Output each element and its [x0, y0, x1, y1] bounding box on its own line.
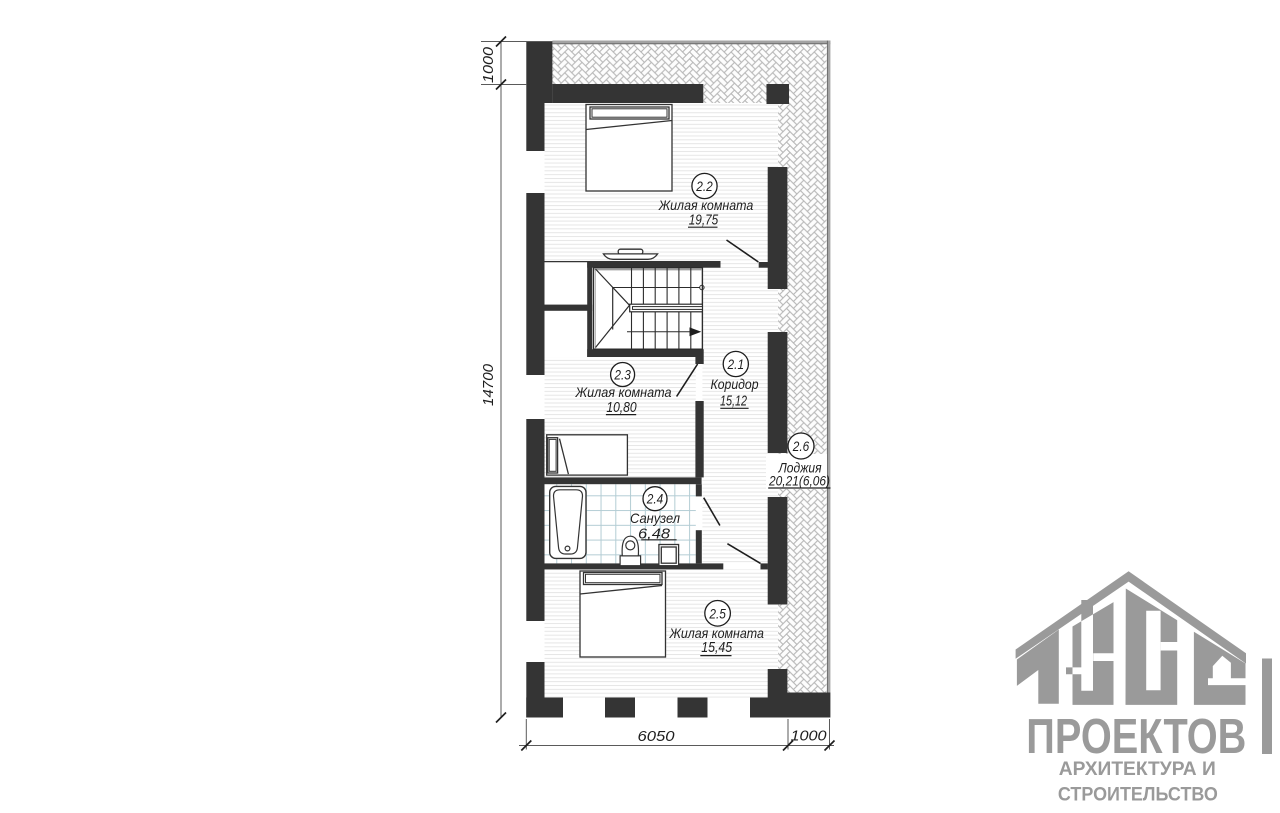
svg-text:Жилая комната: Жилая комната — [669, 626, 765, 641]
svg-text:15,45: 15,45 — [701, 640, 733, 656]
svg-text:Санузел: Санузел — [630, 511, 680, 526]
svg-text:2.2: 2.2 — [695, 178, 713, 194]
svg-text:10,80: 10,80 — [606, 400, 636, 416]
svg-text:6050: 6050 — [638, 729, 675, 745]
svg-text:Жилая комната: Жилая комната — [658, 198, 754, 213]
svg-text:Жилая комната: Жилая комната — [575, 385, 672, 400]
svg-text:14700: 14700 — [481, 364, 497, 406]
svg-text:1000: 1000 — [791, 729, 827, 745]
svg-text:2.6: 2.6 — [792, 438, 810, 454]
svg-text:АРХИТЕКТУРА И: АРХИТЕКТУРА И — [1059, 758, 1216, 780]
svg-text:СТРОИТЕЛЬСТВО: СТРОИТЕЛЬСТВО — [1058, 784, 1218, 806]
svg-text:2.1: 2.1 — [727, 356, 744, 372]
svg-text:Коридор: Коридор — [711, 377, 759, 392]
svg-text:19,75: 19,75 — [689, 213, 719, 229]
svg-text:20,21(6,06): 20,21(6,06) — [768, 473, 830, 489]
svg-text:2.5: 2.5 — [709, 605, 727, 621]
svg-text:ПРОЕКТОВ: ПРОЕКТОВ — [1026, 710, 1246, 764]
svg-text:1000: 1000 — [481, 47, 497, 83]
svg-text:15,12: 15,12 — [720, 394, 747, 410]
svg-text:2.3: 2.3 — [614, 367, 632, 383]
svg-text:2.4: 2.4 — [646, 491, 664, 507]
